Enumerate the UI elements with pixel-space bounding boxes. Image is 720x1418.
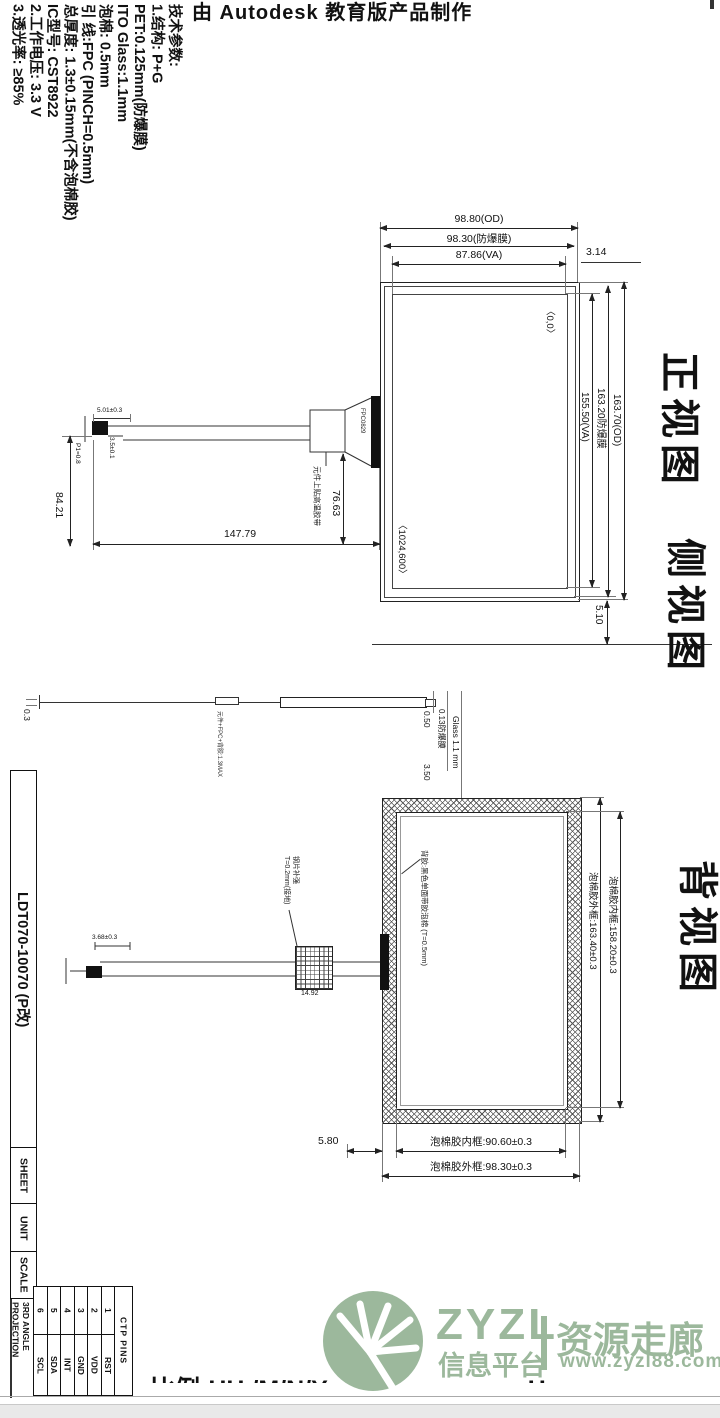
pin-column: 6 SCL: [34, 1287, 48, 1395]
origin-label: 〈0,0〉: [544, 306, 558, 338]
dim-side-left: 0.3: [22, 709, 32, 721]
side-view-title: 侧视图: [660, 538, 718, 676]
side-view-panel-profile: [280, 697, 427, 708]
ext-line: [130, 414, 131, 422]
dim-bottom-margin: 5.10: [593, 605, 604, 624]
ext-line: [566, 1107, 624, 1108]
dim-line-tail-width: [93, 418, 131, 419]
tech-spec-line: 泡棉: 0.5mm: [95, 4, 112, 270]
dim-tail-width: 5.01±0.3: [97, 407, 122, 414]
scale-label: SCALE: [18, 1257, 30, 1293]
dim-film-thickness: 0.13防爆膜: [436, 709, 447, 749]
tech-spec-line: 2.工作电压: 3.3 V: [25, 4, 42, 270]
dim-line-va-height: [592, 294, 593, 587]
autodesk-banner: 由 Autodesk 教育版产品制作: [192, 0, 472, 25]
watermark-divider: [541, 1316, 547, 1370]
pin-column: 2 VDD: [88, 1287, 102, 1395]
dim-foam-outer-height: 泡棉胶外框:163.40±0.3: [587, 872, 601, 970]
pin-name: INT: [62, 1358, 72, 1372]
tech-spec-line: ITO Glass:1.1mm: [112, 4, 129, 270]
stack-note: 元件+FPC+背胶:1.3MAX: [216, 711, 225, 777]
ext-line: [26, 705, 37, 706]
part-number-cell: LDT070-10070 (P改): [10, 770, 37, 1149]
dim-pet: 0.50: [422, 711, 432, 728]
back-view-title: 背视图: [672, 860, 720, 998]
watermark-brand: ZYZL: [436, 1300, 558, 1350]
dim-tail-length: 147.79: [195, 528, 285, 540]
dim-right-margin: 3.14: [586, 246, 606, 258]
dim-foam-inner-width: 泡棉胶内框:90.60±0.3: [396, 1134, 566, 1149]
unit-label: UNIT: [18, 1216, 30, 1241]
stiffener-note-line1: 钢片补强: [291, 856, 300, 904]
ext-line: [577, 222, 578, 282]
fpc-tail-back-drawing: [60, 898, 382, 998]
stiffener-plate: [295, 946, 333, 990]
dim-tail-pitch: 3.5±0.1: [108, 437, 115, 459]
dim-tail-drop: 84.21: [53, 492, 65, 518]
pin-column: 5 SDA: [48, 1287, 62, 1395]
dim-line-right-margin: [581, 262, 641, 263]
pin-number: 3: [76, 1308, 86, 1313]
pin-number: 2: [89, 1308, 99, 1313]
dim-glass-thickness: Glass 1.1 mm: [451, 716, 461, 768]
dim-offset: 5.80: [318, 1135, 338, 1147]
pin-column: 4 INT: [61, 1287, 75, 1395]
tech-spec-line: PET:0.125mm(防爆膜): [130, 4, 147, 270]
sheet-corner-mark: [710, 0, 714, 9]
ext-line: [461, 691, 462, 806]
tech-spec-line: 引 线:FPC (PINCH=0.5mm): [78, 4, 95, 270]
front-view-active-area: [392, 294, 568, 589]
adhesive-note: 背胶:黑色单面带胶泡棉 (T=0.5mm): [419, 850, 430, 966]
projection-label: 3RD ANGLE PROJECTION: [9, 1302, 31, 1357]
sheet-label: SHEET: [18, 1158, 30, 1193]
zyzl-logo-icon: [322, 1290, 424, 1392]
sheet-cell: SHEET: [10, 1147, 37, 1205]
ctp-header-cell: CTP PINS: [115, 1287, 132, 1395]
ext-line: [379, 468, 380, 550]
part-number: LDT070-10070 (P改): [13, 892, 34, 1027]
dim-line-tail-length: [93, 544, 380, 545]
tape-note: 元件上贴高温胶带: [312, 466, 322, 500]
pin-column: 1 RST: [102, 1287, 116, 1395]
dim-line-od-width: [380, 228, 578, 229]
dim-tail-offset: 76.63: [330, 490, 342, 516]
unit-cell: UNIT: [10, 1203, 37, 1253]
projection-line2: PROJECTION: [10, 1302, 21, 1357]
side-view-fpc-line: [40, 702, 280, 703]
dim-film-width: 98.30(防爆膜): [384, 231, 574, 246]
pin-number: 6: [35, 1308, 45, 1313]
pin-number: 4: [62, 1308, 72, 1313]
dim-foam-thickness: 3.50: [422, 764, 432, 781]
stiffener-note: 钢片补强 T=0.2mm(接地): [280, 856, 300, 904]
fpc-tail-front-drawing: [75, 390, 385, 485]
side-view-connector-bump: [215, 697, 239, 705]
tech-spec-line: 3.透光率: ≥85%: [8, 4, 25, 270]
projection-line1: 3RD ANGLE: [21, 1302, 32, 1357]
pin-name: SDA: [49, 1356, 59, 1374]
connector-label: FPC0829: [359, 408, 365, 433]
ext-line: [380, 222, 381, 282]
ext-line: [93, 440, 94, 550]
ext-line: [433, 691, 434, 713]
ext-line: [566, 811, 624, 812]
drawing-sheet: 由 Autodesk 教育版产品制作 技术参数: 1.结构: P+G PET:0…: [0, 0, 720, 1418]
ext-line: [26, 699, 37, 700]
dim-line-foam-outer-w: [382, 1176, 580, 1177]
dim-foam-outer-width: 泡棉胶外框:98.30±0.3: [372, 1159, 590, 1174]
ext-line: [447, 691, 448, 771]
dim-line-tail-offset: [343, 454, 344, 544]
ctp-header: CTP PINS: [119, 1317, 129, 1364]
resolution-label: 〈1024,600〉: [396, 520, 410, 579]
watermark-tagline: 信息平台: [438, 1344, 546, 1383]
watermark-url: www.zyzl88.com: [560, 1351, 720, 1373]
dim-line-va-width: [392, 264, 566, 265]
pin-name: RST: [103, 1357, 113, 1374]
dim-od-height: 163.70(OD): [611, 394, 622, 446]
pin-name: SCL: [35, 1357, 45, 1374]
tech-spec-line: IC型号: CST8922: [43, 4, 60, 270]
pin-number: 5: [49, 1308, 59, 1313]
stiffener-note-line2: T=0.2mm(接地): [282, 856, 291, 904]
dim-line-stiffener: [295, 988, 331, 989]
dim-line-od-height: [624, 282, 625, 600]
dim-line-tail-drop: [70, 436, 71, 546]
front-view-title: 正视图: [654, 352, 712, 490]
scrollbar[interactable]: [0, 1404, 720, 1418]
side-view-edge-step: [425, 699, 436, 707]
sheet-bottom-edge: [0, 1396, 720, 1397]
pin-name: VDD: [89, 1356, 99, 1374]
pin-name: GND: [76, 1356, 86, 1375]
dim-line-film-width: [384, 246, 574, 247]
tech-spec-block: 技术参数: 1.结构: P+G PET:0.125mm(防爆膜) ITO Gla…: [8, 4, 182, 270]
dim-stiffener-width: 14.92: [301, 990, 319, 997]
dim-film-height: 163.20防爆膜: [595, 388, 610, 449]
pin-column: 3 GND: [75, 1287, 89, 1395]
ctp-pins-table: 6 SCL 5 SDA 4 INT 3 GND 2 VDD 1 RST CTP …: [33, 1286, 133, 1396]
dim-va-height: 155.50(VA): [579, 392, 590, 442]
dim-foam-inner-height: 泡棉胶内框:158.20±0.3: [607, 876, 621, 974]
side-view-end-tick: [39, 695, 40, 709]
tech-spec-line: 1.结构: P+G: [147, 4, 164, 270]
ext-line: [93, 414, 94, 422]
dim-od-width: 98.80(OD): [380, 213, 578, 225]
tech-spec-line: 总厚度: 1.3±0.15mm(不含泡棉胶): [60, 4, 77, 270]
dim-line-bottom-margin: [607, 601, 608, 644]
pin-number: 1: [103, 1308, 113, 1313]
dim-p1: P1=0.8: [74, 443, 81, 464]
dim-back-tail: 3.68±0.3: [92, 934, 117, 941]
dim-va-width: 87.86(VA): [392, 249, 566, 261]
dim-line-offset: [347, 1151, 382, 1152]
tech-spec-title: 技术参数:: [165, 4, 182, 270]
dim-line-foam-inner-w: [396, 1151, 566, 1152]
